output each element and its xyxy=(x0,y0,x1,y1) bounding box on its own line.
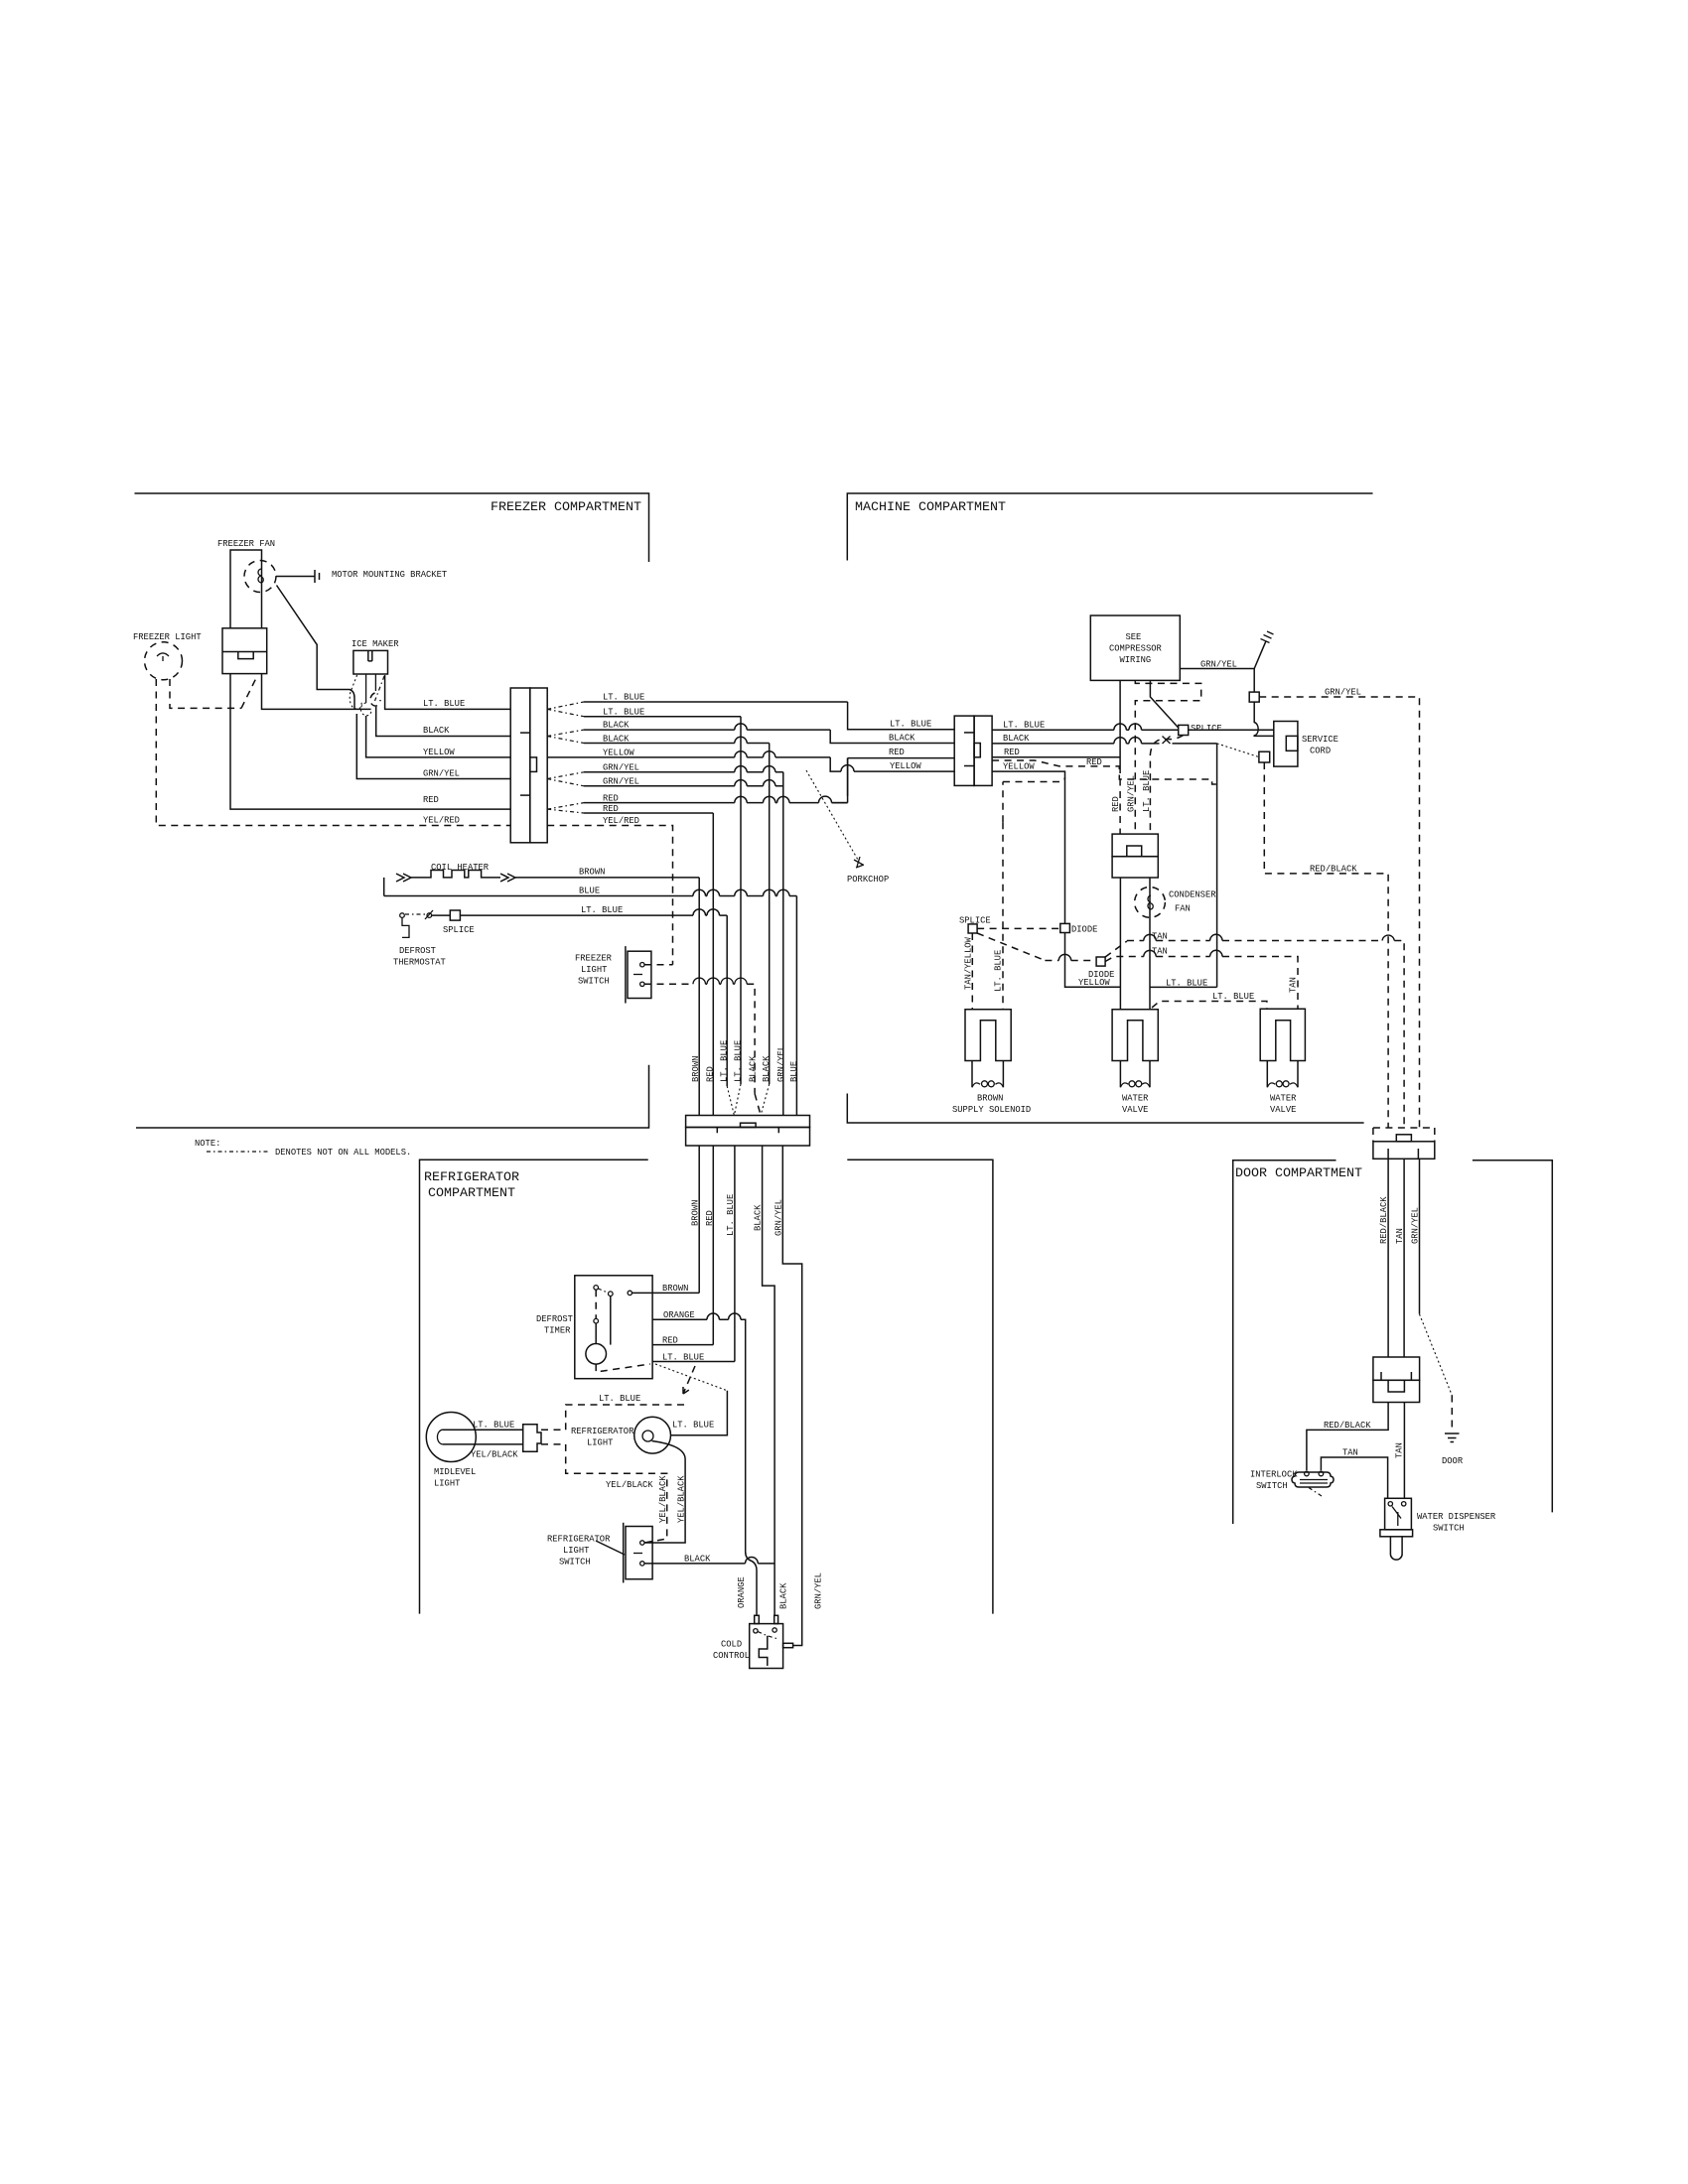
svg-text:LIGHT: LIGHT xyxy=(581,965,607,975)
svg-text:BLUE: BLUE xyxy=(789,1061,799,1082)
svg-text:BLUE: BLUE xyxy=(579,887,600,896)
svg-text:YEL/BLACK: YEL/BLACK xyxy=(658,1475,668,1523)
svg-text:YEL/BLACK: YEL/BLACK xyxy=(606,1480,653,1490)
svg-text:GRN/YEL: GRN/YEL xyxy=(1127,775,1137,812)
svg-text:YEL/BLACK: YEL/BLACK xyxy=(471,1450,518,1460)
svg-text:TAN/YELLOW: TAN/YELLOW xyxy=(964,936,974,990)
svg-text:COMPARTMENT: COMPARTMENT xyxy=(428,1186,515,1201)
svg-text:DEFROST: DEFROST xyxy=(536,1314,573,1324)
svg-text:LT. BLUE: LT. BLUE xyxy=(994,950,1004,992)
svg-text:YEL/RED: YEL/RED xyxy=(423,816,460,826)
svg-text:SWITCH: SWITCH xyxy=(1256,1481,1288,1491)
svg-text:MIDLEVEL: MIDLEVEL xyxy=(434,1467,476,1477)
svg-text:RED: RED xyxy=(889,748,905,757)
svg-text:RED: RED xyxy=(1111,796,1121,812)
svg-text:YEL/RED: YEL/RED xyxy=(603,816,639,826)
svg-text:GRN/YEL: GRN/YEL xyxy=(814,1572,824,1609)
svg-text:ICE MAKER: ICE MAKER xyxy=(352,639,399,649)
svg-text:WATER: WATER xyxy=(1270,1094,1297,1104)
svg-text:SPLICE: SPLICE xyxy=(443,925,475,935)
svg-text:GRN/YEL: GRN/YEL xyxy=(603,777,639,787)
svg-text:RED: RED xyxy=(706,1066,716,1082)
svg-text:CONDENSER: CONDENSER xyxy=(1169,890,1216,900)
svg-text:REFRIGERATOR: REFRIGERATOR xyxy=(547,1535,611,1545)
svg-text:BLACK: BLACK xyxy=(749,1055,759,1082)
svg-text:YEL/BLACK: YEL/BLACK xyxy=(677,1475,687,1523)
svg-text:GRN/YEL: GRN/YEL xyxy=(1325,687,1361,697)
svg-text:LT. BLUE: LT. BLUE xyxy=(890,720,931,730)
svg-text:TIMER: TIMER xyxy=(544,1326,571,1336)
svg-text:FREEZER: FREEZER xyxy=(575,954,613,964)
svg-text:MOTOR MOUNTING BRACKET: MOTOR MOUNTING BRACKET xyxy=(332,570,447,580)
svg-text:FREEZER COMPARTMENT: FREEZER COMPARTMENT xyxy=(491,500,641,515)
svg-text:RED: RED xyxy=(603,804,619,814)
svg-text:LT. BLUE: LT. BLUE xyxy=(1142,770,1152,812)
svg-text:GRN/YEL: GRN/YEL xyxy=(774,1199,784,1236)
svg-text:LT. BLUE: LT. BLUE xyxy=(1166,978,1207,988)
svg-text:SERVICE: SERVICE xyxy=(1302,735,1338,745)
svg-text:YELLOW: YELLOW xyxy=(1003,762,1035,772)
svg-text:LIGHT: LIGHT xyxy=(434,1479,460,1489)
svg-text:LT. BLUE: LT. BLUE xyxy=(1003,720,1045,730)
svg-text:BROWN: BROWN xyxy=(691,1200,701,1226)
svg-text:BLACK: BLACK xyxy=(754,1204,764,1231)
svg-text:BROWN: BROWN xyxy=(662,1284,688,1294)
svg-text:VALVE: VALVE xyxy=(1122,1105,1148,1115)
svg-text:BLACK: BLACK xyxy=(603,734,630,744)
svg-text:TAN: TAN xyxy=(1289,977,1299,993)
svg-text:WATER DISPENSER: WATER DISPENSER xyxy=(1417,1512,1496,1522)
svg-text:COLD: COLD xyxy=(721,1640,742,1650)
svg-text:CONTROL: CONTROL xyxy=(713,1651,750,1661)
svg-text:RED: RED xyxy=(1004,748,1020,757)
svg-text:GRN/YEL: GRN/YEL xyxy=(776,1045,786,1082)
svg-text:BLACK: BLACK xyxy=(603,721,630,731)
svg-text:TAN: TAN xyxy=(1395,1442,1405,1458)
svg-text:PORKCHOP: PORKCHOP xyxy=(847,875,889,885)
svg-text:TAN: TAN xyxy=(1152,931,1168,941)
svg-text:RED: RED xyxy=(1086,757,1102,767)
svg-text:RED: RED xyxy=(423,795,439,805)
svg-text:SPLICE: SPLICE xyxy=(959,915,991,925)
svg-text:WIRING: WIRING xyxy=(1120,655,1152,665)
svg-text:SWITCH: SWITCH xyxy=(578,977,610,987)
svg-text:SPLICE: SPLICE xyxy=(1191,724,1222,734)
svg-text:ORANGE: ORANGE xyxy=(663,1310,695,1320)
svg-text:BLACK: BLACK xyxy=(779,1582,789,1609)
svg-text:LT. BLUE: LT. BLUE xyxy=(599,1394,640,1404)
svg-text:THERMOSTAT: THERMOSTAT xyxy=(393,958,446,968)
svg-text:RED: RED xyxy=(603,793,619,803)
svg-text:GRN/YEL: GRN/YEL xyxy=(1200,659,1237,669)
svg-text:FREEZER FAN: FREEZER FAN xyxy=(217,539,275,549)
svg-text:SEE: SEE xyxy=(1126,632,1142,642)
svg-text:YELLOW: YELLOW xyxy=(890,761,921,771)
svg-text:BLACK: BLACK xyxy=(1003,734,1030,744)
svg-text:DIODE: DIODE xyxy=(1088,970,1114,980)
svg-text:GRN/YEL: GRN/YEL xyxy=(603,763,639,773)
svg-text:REFRIGERATOR: REFRIGERATOR xyxy=(571,1427,634,1436)
svg-text:COMPRESSOR: COMPRESSOR xyxy=(1109,644,1163,654)
svg-text:CORD: CORD xyxy=(1310,747,1331,756)
svg-text:FAN: FAN xyxy=(1175,904,1191,914)
svg-text:DENOTES NOT ON ALL MODELS.: DENOTES NOT ON ALL MODELS. xyxy=(275,1148,411,1158)
svg-text:NOTE:: NOTE: xyxy=(195,1139,220,1149)
svg-text:LIGHT: LIGHT xyxy=(563,1546,589,1556)
svg-text:BLACK: BLACK xyxy=(684,1555,711,1565)
svg-text:WATER: WATER xyxy=(1122,1094,1149,1104)
svg-text:SUPPLY SOLENOID: SUPPLY SOLENOID xyxy=(952,1105,1031,1115)
svg-text:LT. BLUE: LT. BLUE xyxy=(603,693,644,703)
svg-text:REFRIGERATOR: REFRIGERATOR xyxy=(424,1170,519,1185)
svg-text:LT. BLUE: LT. BLUE xyxy=(581,905,623,915)
svg-text:VALVE: VALVE xyxy=(1270,1105,1296,1115)
svg-text:MACHINE COMPARTMENT: MACHINE COMPARTMENT xyxy=(855,500,1006,515)
svg-text:TAN: TAN xyxy=(1342,1448,1358,1458)
svg-text:LT. BLUE: LT. BLUE xyxy=(720,1040,730,1082)
svg-text:LT. BLUE: LT. BLUE xyxy=(734,1040,744,1082)
svg-text:RED: RED xyxy=(662,1335,678,1345)
svg-text:TAN: TAN xyxy=(1152,946,1168,956)
svg-text:LT. BLUE: LT. BLUE xyxy=(473,1421,514,1431)
svg-text:DEFROST: DEFROST xyxy=(399,946,436,956)
svg-text:LT. BLUE: LT. BLUE xyxy=(603,707,644,717)
svg-text:DOOR: DOOR xyxy=(1442,1456,1464,1466)
svg-text:LT. BLUE: LT. BLUE xyxy=(423,699,465,709)
svg-text:YELLOW: YELLOW xyxy=(423,748,455,757)
svg-text:BROWN: BROWN xyxy=(977,1094,1003,1104)
svg-text:RED/BLACK: RED/BLACK xyxy=(1379,1196,1389,1244)
svg-text:BLACK: BLACK xyxy=(423,726,450,736)
svg-text:LT. BLUE: LT. BLUE xyxy=(726,1194,736,1236)
svg-text:DOOR COMPARTMENT: DOOR COMPARTMENT xyxy=(1235,1166,1362,1181)
svg-text:FREEZER LIGHT: FREEZER LIGHT xyxy=(133,632,202,642)
svg-text:RED/BLACK: RED/BLACK xyxy=(1310,864,1357,874)
svg-text:LT. BLUE: LT. BLUE xyxy=(662,1352,704,1362)
svg-text:DIODE: DIODE xyxy=(1071,925,1097,935)
svg-text:BLACK: BLACK xyxy=(889,733,915,743)
svg-text:LT. BLUE: LT. BLUE xyxy=(672,1421,714,1431)
svg-text:YELLOW: YELLOW xyxy=(603,749,634,758)
svg-text:GRN/YEL: GRN/YEL xyxy=(1411,1207,1421,1244)
svg-text:SWITCH: SWITCH xyxy=(1433,1524,1465,1534)
svg-text:ORANGE: ORANGE xyxy=(737,1576,747,1608)
svg-text:GRN/YEL: GRN/YEL xyxy=(423,769,460,779)
svg-text:BLACK: BLACK xyxy=(762,1055,772,1082)
svg-text:LIGHT: LIGHT xyxy=(587,1438,613,1448)
svg-text:RED/BLACK: RED/BLACK xyxy=(1324,1421,1371,1431)
svg-text:RED: RED xyxy=(705,1210,715,1226)
svg-text:SWITCH: SWITCH xyxy=(559,1558,591,1568)
svg-text:LT. BLUE: LT. BLUE xyxy=(1212,992,1254,1002)
svg-text:TAN: TAN xyxy=(1395,1228,1405,1244)
svg-text:BROWN: BROWN xyxy=(579,868,605,878)
svg-text:INTERLOCK: INTERLOCK xyxy=(1250,1470,1298,1480)
svg-text:BROWN: BROWN xyxy=(691,1056,701,1082)
